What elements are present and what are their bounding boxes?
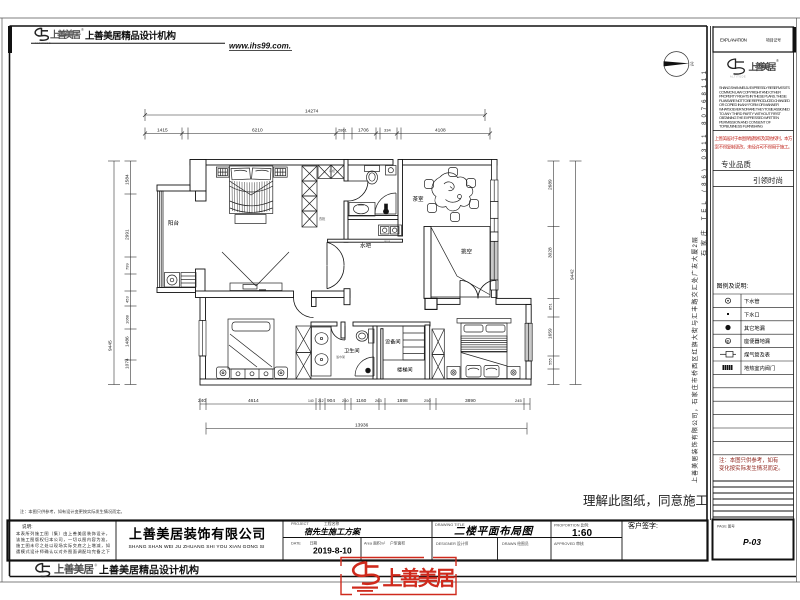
svg-text:客户签字:: 客户签字: xyxy=(628,521,658,530)
svg-text:工程名称: 工程名称 xyxy=(324,521,339,526)
svg-text:1068: 1068 xyxy=(125,314,130,324)
svg-text:3890: 3890 xyxy=(465,398,476,404)
svg-text:其它地漏: 其它地漏 xyxy=(744,324,765,332)
svg-text:1415: 1415 xyxy=(157,128,168,134)
svg-text:13936: 13936 xyxy=(355,423,369,429)
svg-text:Area 面积m²: Area 面积m² xyxy=(364,541,386,546)
svg-text:®: ® xyxy=(95,564,98,568)
svg-text:注：本图只供参考，如有: 注：本图只供参考，如有 xyxy=(719,456,779,464)
svg-text:6210: 6210 xyxy=(252,128,263,134)
svg-text:上善美居对于本图保留版权及其他权利，本方: 上善美居对于本图保留版权及其他权利，本方 xyxy=(715,135,793,142)
svg-text:www.ihs99.com.: www.ihs99.com. xyxy=(229,42,291,51)
svg-text:该施工图版权归本公司，一切以图内容为准，: 该施工图版权归本公司，一切以图内容为准， xyxy=(16,536,110,543)
svg-text:茶室: 茶室 xyxy=(413,195,425,203)
svg-text:上善美居: 上善美居 xyxy=(383,566,456,590)
svg-text:浴巾架: 浴巾架 xyxy=(336,354,345,359)
svg-text:1160: 1160 xyxy=(356,398,367,404)
svg-text:140: 140 xyxy=(308,399,314,403)
svg-text:引领时尚: 引领时尚 xyxy=(753,175,783,185)
svg-text:Ф: Ф xyxy=(726,339,729,344)
svg-text:水吧: 水吧 xyxy=(360,242,372,250)
svg-text:2991: 2991 xyxy=(125,229,131,240)
svg-text:9445: 9445 xyxy=(108,340,114,351)
svg-text:2861: 2861 xyxy=(338,128,348,133)
svg-text:下水管: 下水管 xyxy=(744,297,760,305)
svg-text:3028: 3028 xyxy=(548,247,554,258)
svg-text:遇模式设计师确认以对外图面调配均完备之下: 遇模式设计师确认以对外图面调配均完备之下 xyxy=(16,548,110,555)
svg-text:上善美居: 上善美居 xyxy=(749,61,777,72)
svg-text:1:60: 1:60 xyxy=(572,528,592,539)
svg-text:PROJECT: PROJECT xyxy=(291,522,309,526)
svg-text:PAGE 图号: PAGE 图号 xyxy=(717,524,735,529)
svg-text:ALTITUDE: ALTITUDE xyxy=(730,76,746,79)
svg-text:项目记号: 项目记号 xyxy=(766,38,781,43)
svg-text:卫生间: 卫生间 xyxy=(344,347,360,355)
svg-text:260: 260 xyxy=(342,398,349,403)
svg-text:851: 851 xyxy=(548,303,553,310)
svg-text:1659: 1659 xyxy=(548,328,554,339)
svg-text:240: 240 xyxy=(198,398,206,404)
svg-text:上善美居装饰有限公司: 上善美居装饰有限公司 xyxy=(129,527,266,542)
svg-text:9442: 9442 xyxy=(570,269,576,280)
svg-text:904: 904 xyxy=(327,398,335,404)
svg-text:上善美居精品设计机构: 上善美居精品设计机构 xyxy=(99,564,199,577)
svg-text:TOPBUSINESS FURNISHING: TOPBUSINESS FURNISHING xyxy=(719,124,763,129)
svg-text:1486: 1486 xyxy=(125,336,131,347)
svg-text:宿先生施工方案: 宿先生施工方案 xyxy=(304,528,362,537)
svg-text:1706: 1706 xyxy=(358,128,369,134)
svg-text:上善美居: 上善美居 xyxy=(54,563,95,576)
svg-text:上善美居精品设计机构: 上善美居精品设计机构 xyxy=(85,30,176,42)
svg-text:阳台: 阳台 xyxy=(168,219,180,227)
svg-text:图例及说明:: 图例及说明: xyxy=(717,282,749,290)
svg-text:W.M.: W.M. xyxy=(384,240,391,244)
svg-text:®: ® xyxy=(81,27,84,32)
svg-text:设备间: 设备间 xyxy=(385,338,401,346)
svg-text:DRAWN 绘图员: DRAWN 绘图员 xyxy=(502,541,529,546)
svg-text:PROPORTION 比例:: PROPORTION 比例: xyxy=(554,523,589,528)
svg-text:地热室内阀门: 地热室内阀门 xyxy=(744,364,775,372)
svg-text:理解此图纸，同意施工: 理解此图纸，同意施工 xyxy=(583,493,708,508)
svg-text:1074: 1074 xyxy=(125,358,131,369)
svg-text:P-03: P-03 xyxy=(743,537,761,547)
svg-text:14274: 14274 xyxy=(305,109,319,115)
svg-text:案不得复制更改，未经许可不得用于施工。: 案不得复制更改，未经许可不得用于施工。 xyxy=(715,144,793,151)
svg-text:DATE: DATE xyxy=(291,542,301,546)
svg-text:453: 453 xyxy=(125,296,130,303)
svg-text:334: 334 xyxy=(384,128,391,133)
svg-text:二楼平面布局图: 二楼平面布局图 xyxy=(454,525,534,538)
svg-text:上善美居装饰有限公司，石家庄市桥西区红旗大街与汇丰路交汇处广: 上善美居装饰有限公司，石家庄市桥西区红旗大街与汇丰路交汇处广友大厦2层 xyxy=(691,237,699,483)
svg-text:说明:: 说明: xyxy=(22,523,32,530)
svg-text:北: 北 xyxy=(690,61,695,68)
svg-text:245: 245 xyxy=(515,398,522,403)
svg-text:座便器地漏: 座便器地漏 xyxy=(744,337,770,345)
svg-text:SHANG SHAN WEI JU ZHUANG SHI Y: SHANG SHAN WEI JU ZHUANG SHI YOU XIAN GO… xyxy=(129,544,265,550)
svg-text:2019-8-10: 2019-8-10 xyxy=(313,546,352,556)
svg-text:2689: 2689 xyxy=(548,179,554,190)
svg-text:EXPLANATION: EXPLANATION xyxy=(720,38,747,43)
svg-text:挑空: 挑空 xyxy=(461,248,473,256)
svg-text:衣柜: 衣柜 xyxy=(319,216,326,221)
svg-text:本表所列施工图（集）由上善美居装饰设计，: 本表所列施工图（集）由上善美居装饰设计， xyxy=(16,530,110,537)
svg-text:4108: 4108 xyxy=(435,128,446,134)
svg-text:APPROVED 审核: APPROVED 审核 xyxy=(554,541,584,546)
svg-text:吊柜: 吊柜 xyxy=(329,168,335,173)
svg-text:上善美居: 上善美居 xyxy=(50,29,81,41)
svg-text:799: 799 xyxy=(125,263,130,270)
svg-text:555: 555 xyxy=(548,358,553,365)
svg-text:4614: 4614 xyxy=(248,398,259,404)
svg-text:变化按实际发生情况而定。: 变化按实际发生情况而定。 xyxy=(719,464,784,472)
svg-text:施工图未尽之处以现场实际交底之上增减，如: 施工图未尽之处以现场实际交底之上增减，如 xyxy=(16,542,110,549)
svg-text:户型面积: 户型面积 xyxy=(390,541,405,546)
svg-text:212: 212 xyxy=(318,399,324,403)
svg-text:1898: 1898 xyxy=(397,398,408,404)
svg-text:注：本图只供参考，如有设计变更按实际发生情况而定。: 注：本图只供参考，如有设计变更按实际发生情况而定。 xyxy=(20,508,125,515)
svg-text:专业品质: 专业品质 xyxy=(721,159,751,169)
svg-text:下水口: 下水口 xyxy=(744,310,760,318)
svg-text:煤气管及表: 煤气管及表 xyxy=(744,351,771,359)
svg-text:®: ® xyxy=(776,58,779,63)
svg-text:263: 263 xyxy=(375,398,382,403)
svg-text:DESIGNER 设计师: DESIGNER 设计师 xyxy=(436,541,468,546)
svg-text:250: 250 xyxy=(424,398,431,403)
svg-text:楼梯间: 楼梯间 xyxy=(397,366,413,374)
svg-text:1584: 1584 xyxy=(125,174,131,185)
